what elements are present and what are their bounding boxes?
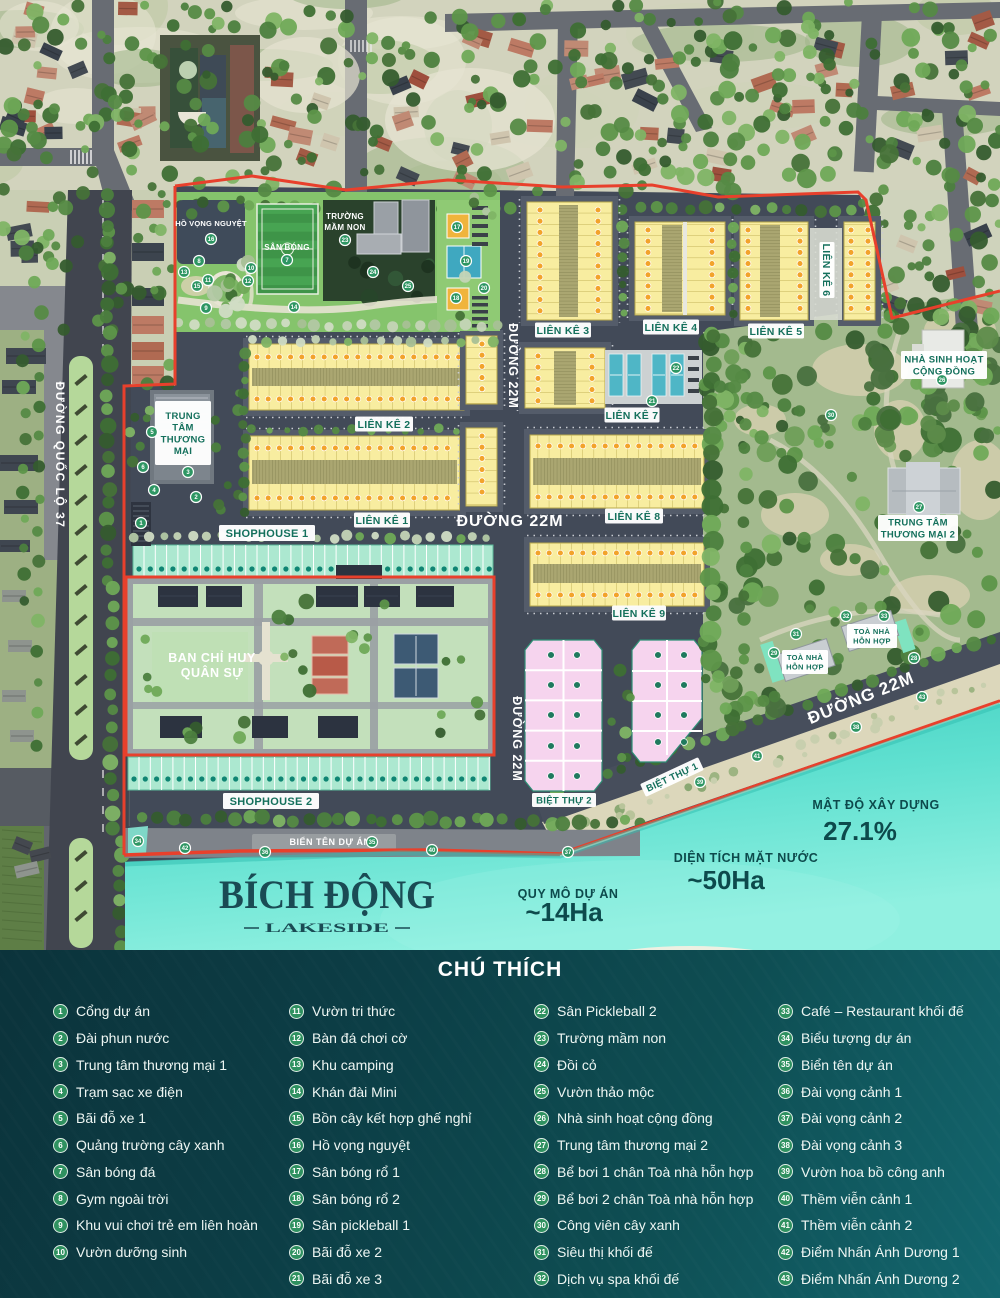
svg-text:BIỆT THỰ 2: BIỆT THỰ 2 xyxy=(536,794,592,806)
svg-text:LIÊN KÊ 3: LIÊN KÊ 3 xyxy=(537,324,590,337)
svg-text:23: 23 xyxy=(342,238,349,244)
svg-text:TRUNG: TRUNG xyxy=(165,411,200,422)
svg-text:TRƯỜNG: TRƯỜNG xyxy=(326,212,364,221)
svg-text:20: 20 xyxy=(481,286,488,292)
svg-text:27.1%: 27.1% xyxy=(823,816,897,846)
svg-text:THƯƠNG MẠI 2: THƯƠNG MẠI 2 xyxy=(881,529,955,540)
svg-text:QUÂN SỰ: QUÂN SỰ xyxy=(181,665,244,680)
svg-text:ĐƯỜNG 22M: ĐƯỜNG 22M xyxy=(510,696,525,782)
svg-text:22: 22 xyxy=(673,366,680,372)
svg-text:LIÊN KÊ 7: LIÊN KÊ 7 xyxy=(606,409,659,422)
svg-text:19: 19 xyxy=(463,259,470,265)
svg-text:16: 16 xyxy=(208,237,215,243)
svg-text:HỖN HỢP: HỖN HỢP xyxy=(853,636,891,645)
svg-text:32: 32 xyxy=(843,614,850,620)
svg-text:31: 31 xyxy=(793,632,800,638)
svg-text:BÍCH ĐỘNG: BÍCH ĐỘNG xyxy=(219,872,435,917)
svg-text:18: 18 xyxy=(453,296,460,302)
svg-text:26: 26 xyxy=(939,378,946,384)
svg-text:~14Ha: ~14Ha xyxy=(525,897,603,927)
svg-text:38: 38 xyxy=(853,725,860,731)
svg-text:ĐƯỜNG QUỐC LỘ 37: ĐƯỜNG QUỐC LỘ 37 xyxy=(53,382,68,529)
svg-text:29: 29 xyxy=(771,651,778,657)
svg-text:~50Ha: ~50Ha xyxy=(687,865,765,895)
svg-text:THƯƠNG: THƯƠNG xyxy=(161,434,206,445)
svg-text:27: 27 xyxy=(916,505,923,511)
svg-text:ĐƯỜNG 22M: ĐƯỜNG 22M xyxy=(456,511,563,530)
svg-text:SHOPHOUSE 2: SHOPHOUSE 2 xyxy=(230,796,313,808)
svg-text:LIÊN KÊ 9: LIÊN KÊ 9 xyxy=(613,607,666,620)
svg-text:30: 30 xyxy=(828,413,835,419)
svg-text:HỖN HỢP: HỖN HỢP xyxy=(786,662,824,671)
svg-text:BAN CHỈ HUY: BAN CHỈ HUY xyxy=(168,650,256,665)
svg-text:14: 14 xyxy=(291,305,298,311)
svg-text:MẬT ĐỘ XÂY DỰNG: MẬT ĐỘ XÂY DỰNG xyxy=(812,797,939,812)
svg-text:LIÊN KÊ 1: LIÊN KÊ 1 xyxy=(356,514,409,527)
svg-text:17: 17 xyxy=(454,225,461,231)
svg-text:NHÀ SINH HOẠT: NHÀ SINH HOẠT xyxy=(904,355,983,366)
svg-text:HỒ VỌNG NGUYỆT: HỒ VỌNG NGUYỆT xyxy=(175,218,247,228)
svg-text:10: 10 xyxy=(248,266,255,272)
svg-text:36: 36 xyxy=(262,850,269,856)
svg-text:39: 39 xyxy=(697,780,704,786)
svg-text:BIỂN TÊN DỰ ÁN: BIỂN TÊN DỰ ÁN xyxy=(290,836,371,847)
svg-text:MẦM NON: MẦM NON xyxy=(324,222,365,232)
svg-text:DIỆN TÍCH MẶT NƯỚC: DIỆN TÍCH MẶT NƯỚC xyxy=(674,850,819,865)
svg-text:43: 43 xyxy=(919,695,926,701)
svg-text:41: 41 xyxy=(754,754,761,760)
svg-text:12: 12 xyxy=(245,279,252,285)
svg-text:13: 13 xyxy=(181,270,188,276)
svg-text:42: 42 xyxy=(182,846,189,852)
svg-text:35: 35 xyxy=(369,840,376,846)
svg-text:28: 28 xyxy=(911,656,918,662)
svg-text:TÂM: TÂM xyxy=(172,422,193,434)
svg-text:11: 11 xyxy=(205,278,212,284)
svg-text:TOÀ NHÀ: TOÀ NHÀ xyxy=(854,627,890,636)
svg-text:24: 24 xyxy=(370,270,377,276)
svg-text:37: 37 xyxy=(565,850,572,856)
svg-text:ĐƯỜNG 22M: ĐƯỜNG 22M xyxy=(506,323,521,409)
svg-text:LAKESIDE: LAKESIDE xyxy=(265,920,389,935)
svg-text:LIÊN KÊ 2: LIÊN KÊ 2 xyxy=(358,418,411,431)
svg-text:LIÊN KÊ 5: LIÊN KÊ 5 xyxy=(750,325,803,338)
svg-text:SÂN BÓNG: SÂN BÓNG xyxy=(264,243,310,252)
svg-text:34: 34 xyxy=(135,839,142,845)
svg-text:33: 33 xyxy=(881,614,888,620)
svg-text:21: 21 xyxy=(649,399,656,405)
svg-text:LIÊN KÊ 4: LIÊN KÊ 4 xyxy=(645,321,698,334)
svg-text:MẠI: MẠI xyxy=(174,446,192,457)
svg-text:SHOPHOUSE 1: SHOPHOUSE 1 xyxy=(226,528,309,540)
svg-text:TOÀ NHÀ: TOÀ NHÀ xyxy=(787,653,823,662)
svg-text:25: 25 xyxy=(405,284,412,290)
svg-text:LIÊN KÊ 8: LIÊN KÊ 8 xyxy=(608,510,661,523)
svg-text:15: 15 xyxy=(194,284,201,290)
svg-text:LIÊN KÊ 6: LIÊN KÊ 6 xyxy=(820,244,833,297)
svg-text:TRUNG TÂM: TRUNG TÂM xyxy=(888,517,948,529)
svg-text:40: 40 xyxy=(429,848,436,854)
